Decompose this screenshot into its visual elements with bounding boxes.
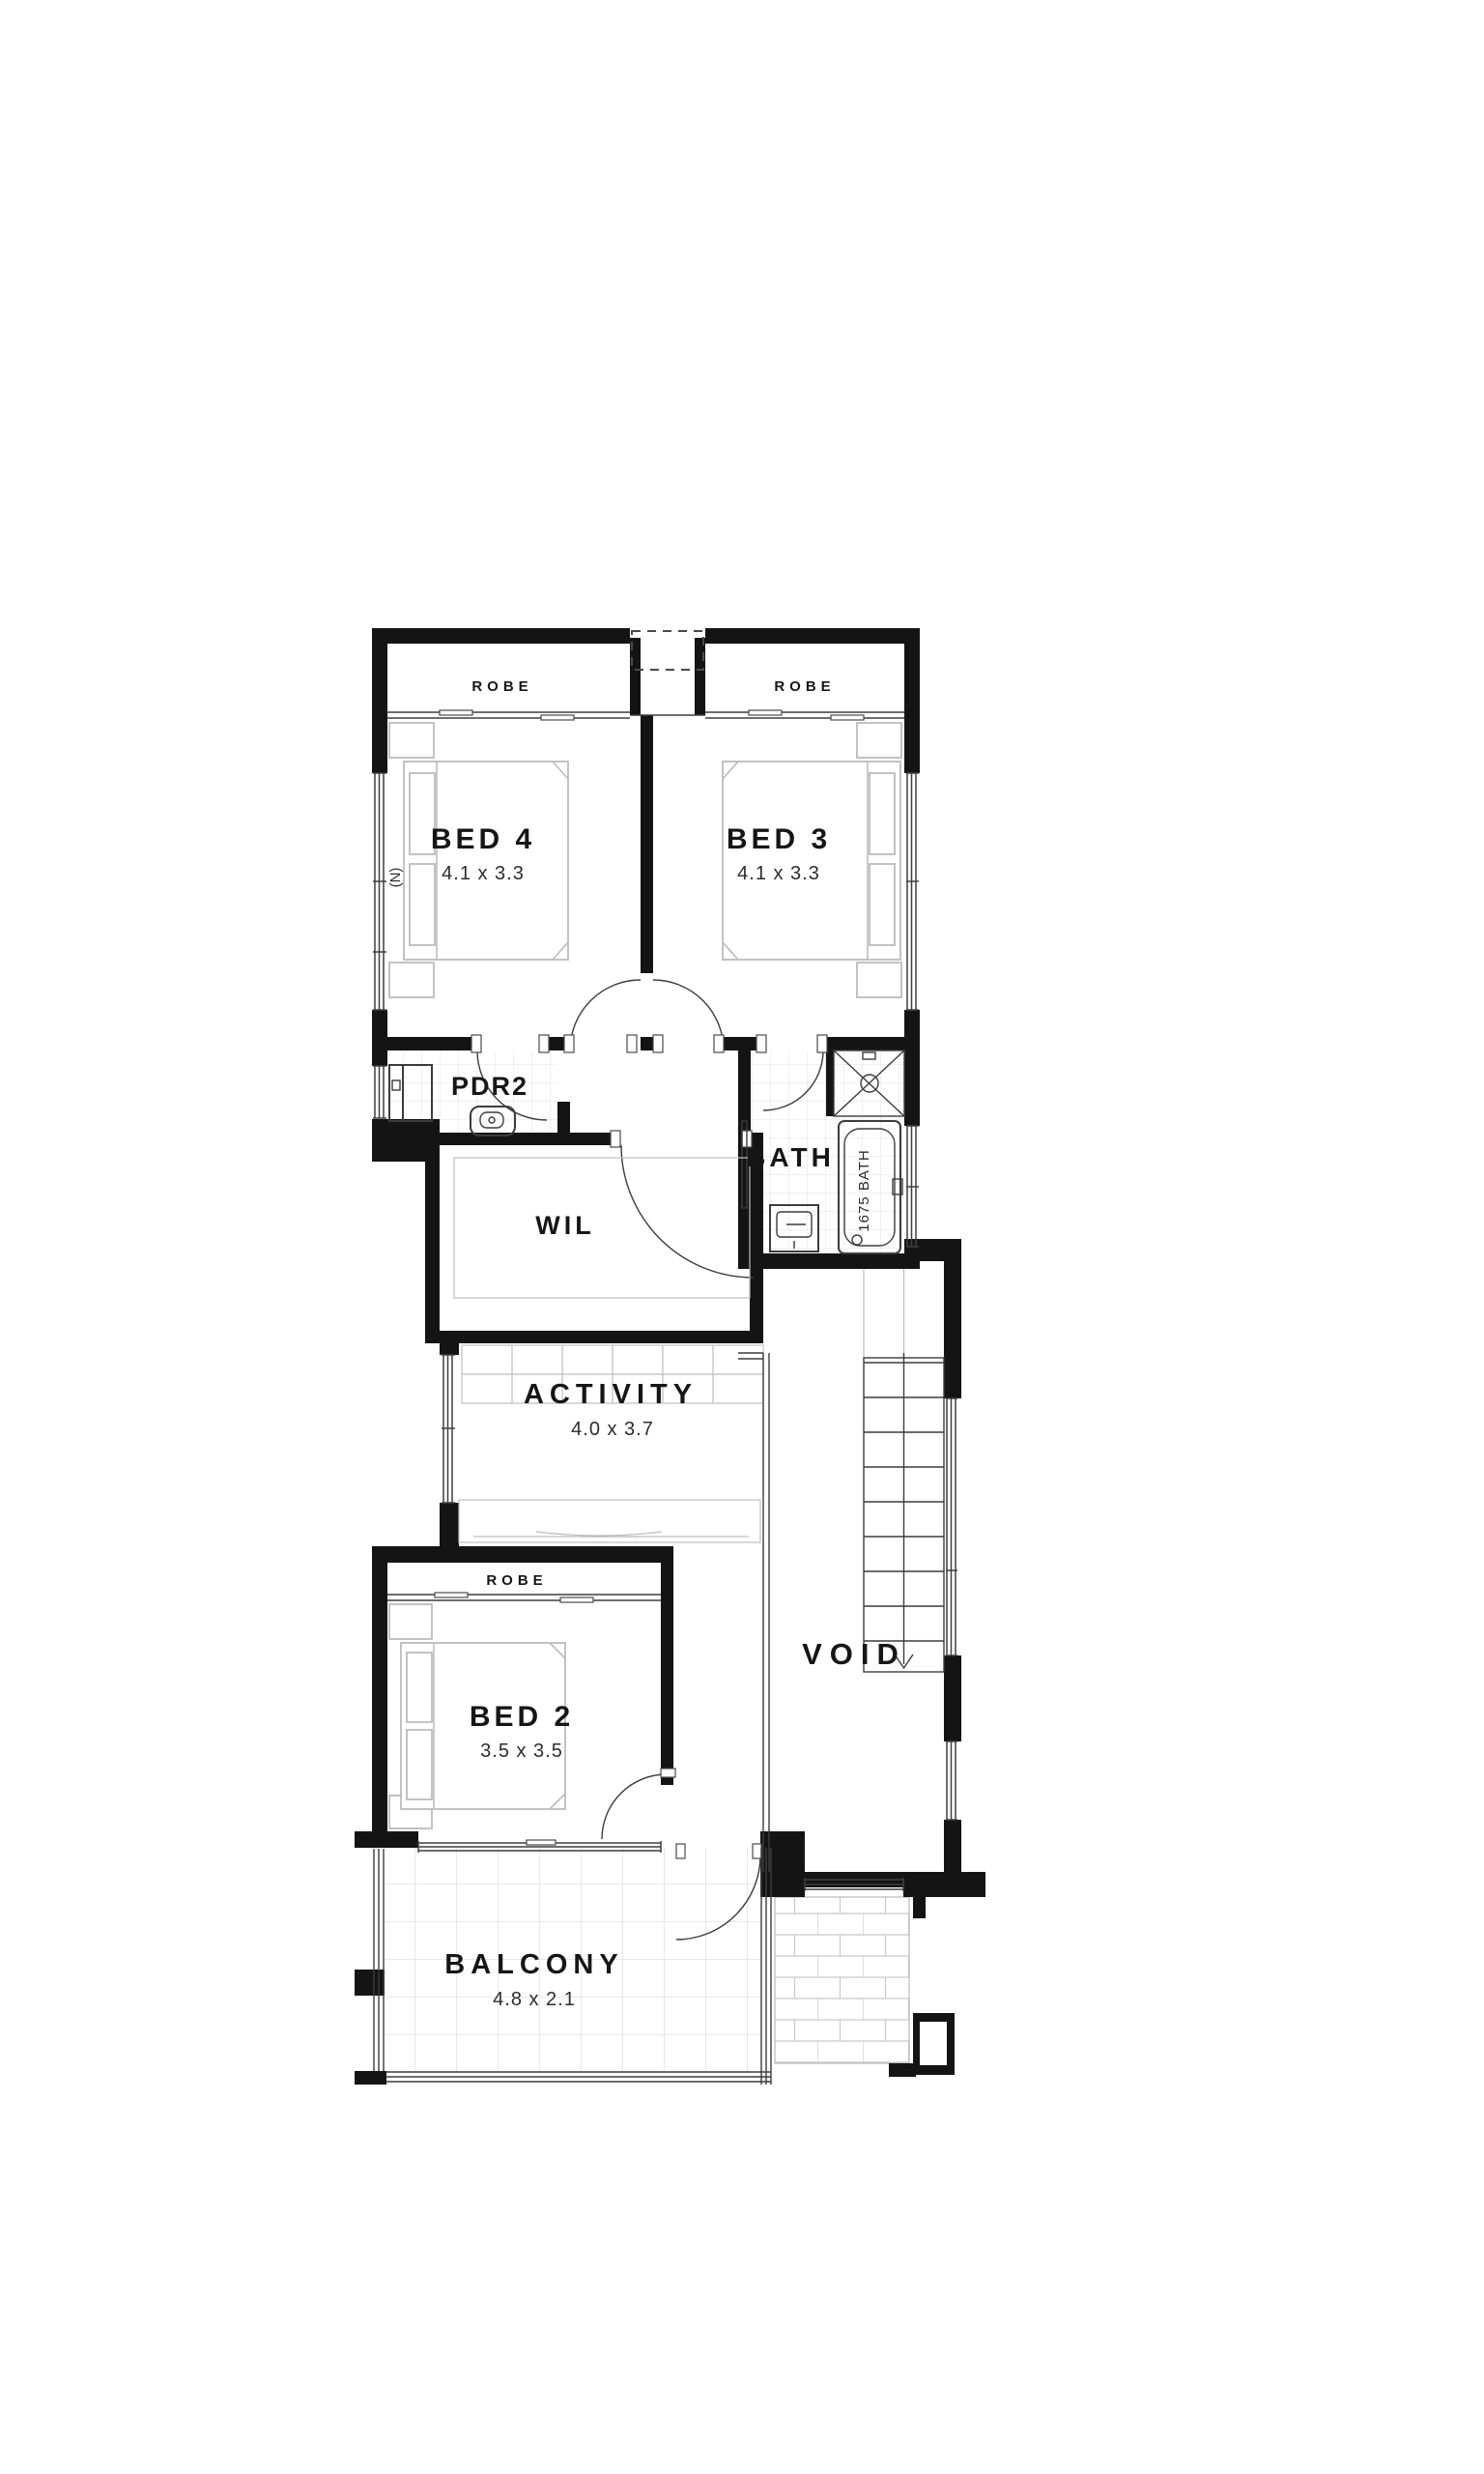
bed3-pillow-2 <box>870 864 895 945</box>
niche-wall-right <box>695 638 705 715</box>
bed3-side-table-top <box>857 723 901 758</box>
wil-label: WIL <box>535 1211 594 1240</box>
wall-shower-stub <box>826 1050 834 1116</box>
window-pdr2-left <box>373 1066 386 1118</box>
bed2-pillow-1 <box>407 1653 432 1722</box>
robe-bed2-label: ROBE <box>486 1572 547 1589</box>
bed2-label: BED 2 <box>470 1701 574 1733</box>
wall-bath-bottom <box>738 1253 920 1269</box>
wall-bed2-left <box>372 1546 387 1848</box>
bed2-label-group: BED 2 3.5 x 3.5 <box>470 1701 574 1762</box>
door-arc-bed2 <box>602 1774 667 1839</box>
brick-paving <box>775 1897 909 2063</box>
window-bath-right <box>906 1126 919 1247</box>
void-label: VOID <box>802 1637 906 1671</box>
wall-activity-window-bottom <box>440 1503 459 1551</box>
wall-wil-left <box>425 1160 440 1343</box>
wall-wil-bottom <box>425 1331 763 1343</box>
balcony-dims: 4.8 x 2.1 <box>493 1989 576 2010</box>
bed3-pillow-1 <box>870 773 895 854</box>
window-bed3-right <box>906 773 919 1010</box>
wall-bed2-bottom-corner <box>355 1831 418 1848</box>
bed2-pillow-2 <box>407 1730 432 1799</box>
wall-pdr2-right <box>557 1102 570 1136</box>
bed3-label: BED 3 <box>727 823 831 855</box>
robe-bed3-label: ROBE <box>774 678 835 695</box>
staircase <box>864 1269 944 1672</box>
wil-shelving <box>454 1158 750 1298</box>
wall-beds-bottom-a <box>372 1037 477 1050</box>
bed4-dims: 4.1 x 3.3 <box>442 863 525 884</box>
balcony-label: BALCONY <box>444 1949 623 1980</box>
bed4-pillow-2 <box>410 864 435 945</box>
bed3-dims: 4.1 x 3.3 <box>737 863 820 884</box>
door-arc-bed3 <box>653 980 724 1050</box>
bath-label: BATH <box>746 1142 835 1172</box>
bathtub-size-label: 1675 BATH <box>856 1149 872 1231</box>
balcony-corner-post <box>355 2071 386 2085</box>
bed2-side-table-top <box>389 1604 432 1639</box>
wall-balcony-door-post <box>760 1831 805 1897</box>
north-label: (N) <box>387 868 404 888</box>
wall-left-upper <box>372 628 387 773</box>
sliding-door-overlap <box>527 1840 556 1845</box>
activity-desk <box>459 1500 760 1542</box>
wall-pdr2-wil-top <box>372 1133 618 1145</box>
floor-plan-svg: ROBE ROBE ROBE <box>0 0 1484 2474</box>
robe-bed2: ROBE <box>387 1572 661 1602</box>
window-activity-left <box>442 1355 455 1503</box>
wall-beds-bottom-e <box>826 1037 920 1050</box>
wall-bed2-right <box>661 1563 673 1785</box>
wall-terrace-bottom <box>889 2063 916 2077</box>
door-arc-wil <box>621 1145 754 1278</box>
wall-terrace-corner <box>903 1872 985 1897</box>
wall-terrace-stub <box>913 1897 926 1918</box>
robe-bed3: ROBE <box>705 678 904 720</box>
window-terrace-top <box>805 1878 903 1891</box>
wall-right-mid <box>904 1010 920 1126</box>
activity-joinery <box>459 1345 763 1542</box>
bed2-dims: 3.5 x 3.5 <box>480 1740 563 1762</box>
wall-between-beds <box>641 715 653 973</box>
wall-top-right <box>705 628 920 644</box>
pdr2-label: PDR2 <box>451 1072 528 1101</box>
bed4-side-table-bottom <box>389 963 434 997</box>
bed4-label-group: BED 4 4.1 x 3.3 <box>431 823 535 884</box>
wall-right-upper <box>904 628 920 773</box>
wall-bed2-top <box>372 1546 673 1563</box>
bed3-label-group: BED 3 4.1 x 3.3 <box>727 823 831 884</box>
bed4-furniture <box>389 723 568 997</box>
bed4-label: BED 4 <box>431 823 535 855</box>
wall-stair-right-upper <box>944 1261 961 1398</box>
window-void-right <box>946 1741 957 1820</box>
robe-bed4: ROBE <box>387 678 630 720</box>
floor-plan-page: ROBE ROBE ROBE <box>0 0 1484 2474</box>
activity-dims: 4.0 x 3.7 <box>571 1419 654 1440</box>
window-bed4-left <box>373 773 386 1010</box>
wall-top-left <box>372 628 630 644</box>
pier-inner <box>920 2022 947 2065</box>
bed3-side-table-bottom <box>857 963 901 997</box>
sliding-door-bed2-balcony <box>418 1840 661 1853</box>
void-balustrade <box>738 1353 769 1872</box>
activity-label-group: ACTIVITY 4.0 x 3.7 <box>524 1379 698 1440</box>
wil-shelf-outline <box>454 1158 750 1298</box>
balcony-left-post <box>355 1970 385 1996</box>
room-labels: BED 4 4.1 x 3.3 BED 3 4.1 x 3.3 PDR2 WIL… <box>431 823 906 2010</box>
activity-label: ACTIVITY <box>524 1379 698 1410</box>
wall-void-right-mid <box>944 1655 961 1741</box>
wall-beds-bottom-c <box>641 1037 653 1050</box>
robe-bed4-label: ROBE <box>471 678 532 695</box>
desk-monitor <box>536 1532 662 1536</box>
window-stair-right <box>946 1398 957 1655</box>
bed4-side-table-top <box>389 723 434 758</box>
niche-dashed-opening <box>630 631 705 715</box>
niche-dashed-box <box>632 631 703 670</box>
bed3-furniture <box>723 723 901 997</box>
